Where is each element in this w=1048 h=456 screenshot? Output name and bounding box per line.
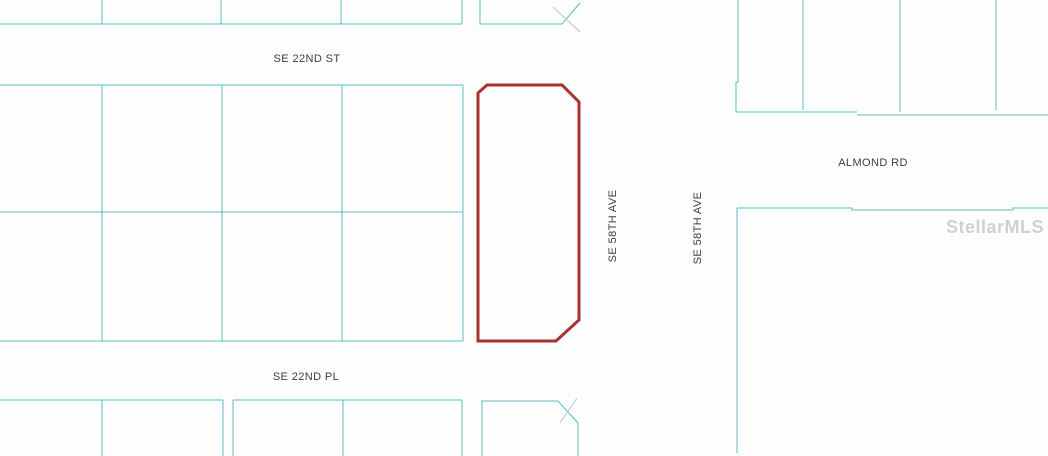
street-label-se-22nd-st: SE 22ND ST [274,53,341,65]
street-label-se-58th-ave-east: SE 58TH AVE [692,192,704,265]
east-parcel-top-edge [737,208,1048,210]
highlighted-subject-parcel [478,85,579,341]
north-corner-artifact-line [553,7,580,32]
street-label-se-22nd-pl: SE 22ND PL [273,371,339,383]
north-corner-parcel-outline [480,0,580,24]
northeast-block-left-edge [736,0,738,112]
street-label-almond-rd: ALMOND RD [838,157,908,169]
stellar-mls-watermark: StellarMLS [946,217,1044,238]
parcel-map-canvas [0,0,1048,456]
street-label-se-58th-ave-west: SE 58TH AVE [607,190,619,263]
south-corner-parcel-outline [482,401,578,456]
parcel-map: SE 22ND ST SE 58TH AVE SE 58TH AVE ALMON… [0,0,1048,456]
